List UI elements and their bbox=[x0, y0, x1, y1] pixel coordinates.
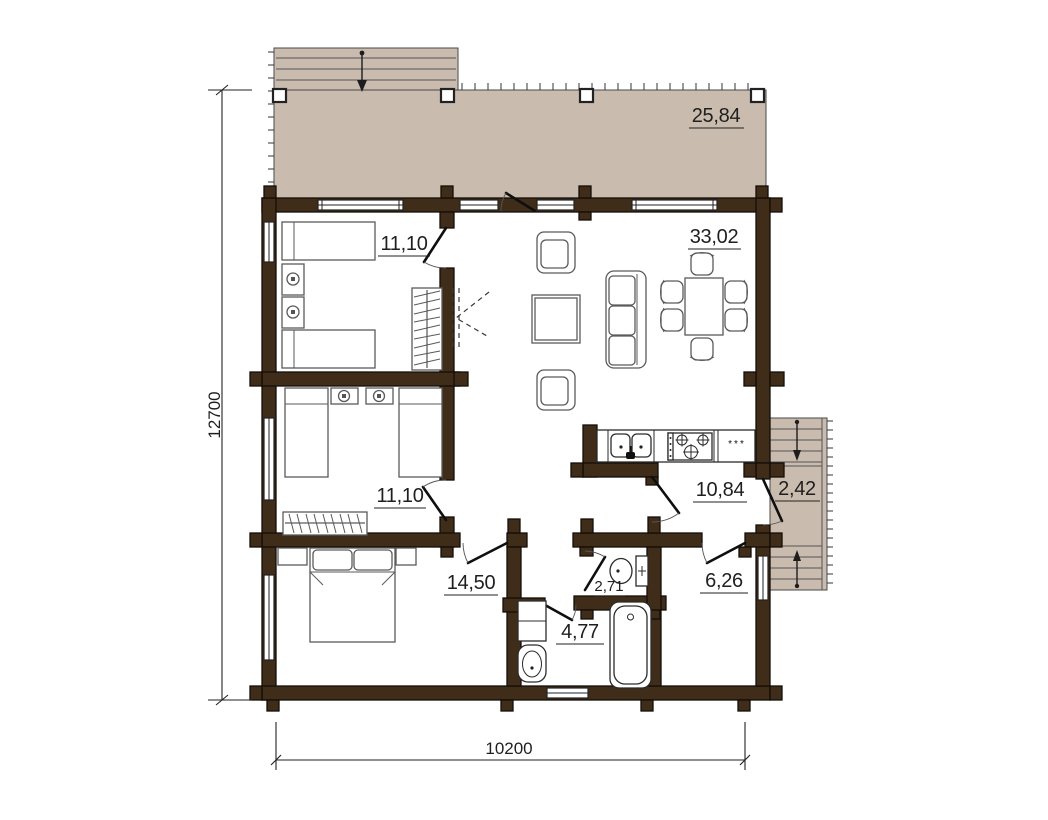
wall-bedrooms-divider bbox=[262, 372, 460, 386]
kitchen-door bbox=[652, 477, 679, 522]
window bbox=[547, 688, 588, 698]
porch bbox=[770, 418, 833, 590]
porch-floor bbox=[770, 418, 827, 590]
room-area-label-hall: 6,26 bbox=[705, 570, 743, 592]
wardrobe bbox=[412, 288, 442, 370]
dimension-label-vertical: 12700 bbox=[205, 391, 224, 438]
window bbox=[460, 200, 498, 210]
chair bbox=[691, 253, 713, 275]
window bbox=[537, 200, 574, 210]
wall-right-mid bbox=[756, 463, 770, 479]
chair bbox=[725, 281, 747, 303]
room-area-label-bedroom-top: 11,10 bbox=[380, 233, 427, 255]
wall-kitchen bbox=[583, 463, 658, 477]
porch-railing-ticks bbox=[827, 421, 833, 583]
dining-table bbox=[685, 278, 723, 335]
bed bbox=[285, 388, 328, 477]
bedroom-mid-door bbox=[423, 480, 446, 520]
dimension-label-horizontal: 10200 bbox=[485, 739, 532, 758]
wall-right-upper bbox=[756, 198, 770, 463]
chair bbox=[725, 309, 747, 331]
sofa bbox=[606, 271, 646, 368]
stove bbox=[668, 433, 712, 460]
pillow bbox=[354, 550, 392, 570]
room-area-label-wc: 2,71 bbox=[594, 578, 623, 595]
bathroom-door bbox=[545, 605, 576, 620]
dashed-opening-symbol bbox=[453, 288, 489, 350]
chair bbox=[661, 309, 683, 331]
room-area-label-kitchen: 10,84 bbox=[696, 479, 745, 501]
room-area-label-bath: 4,77 bbox=[561, 621, 599, 643]
doors bbox=[423, 193, 782, 620]
window bbox=[758, 556, 768, 600]
window bbox=[632, 200, 717, 210]
bedside-table bbox=[396, 548, 416, 565]
room-area-label-bedroom-mid: 11,10 bbox=[376, 485, 423, 507]
bedroom-bottom-furniture bbox=[278, 548, 416, 642]
living-furniture bbox=[532, 232, 748, 410]
pillow bbox=[313, 550, 352, 570]
washbasin bbox=[518, 645, 546, 682]
wall-right-lower bbox=[756, 525, 770, 686]
counter-mark: *** bbox=[728, 439, 746, 450]
bedroom-bottom-door bbox=[463, 543, 507, 563]
window bbox=[264, 222, 274, 262]
bed bbox=[282, 330, 375, 368]
faucet bbox=[626, 452, 635, 459]
room-area-label-living: 33,02 bbox=[690, 226, 739, 248]
wall-bottom bbox=[262, 686, 770, 700]
chair bbox=[661, 281, 683, 303]
terrace-railing-ticks bbox=[462, 83, 748, 90]
wardrobe bbox=[283, 512, 367, 535]
horizontal-dimension: 10200 bbox=[271, 722, 750, 770]
window bbox=[264, 575, 274, 660]
window bbox=[318, 200, 403, 210]
kitchen-counter: *** bbox=[597, 430, 755, 462]
room-area-label-bedroom-bottom: 14,50 bbox=[447, 572, 496, 594]
vertical-dimension: 12700 bbox=[205, 85, 252, 705]
floor-plan-page: *** 2 bbox=[0, 0, 1048, 820]
bed bbox=[282, 222, 375, 260]
bedside-table bbox=[278, 548, 307, 565]
floor-plan-drawing: *** 2 bbox=[0, 0, 1048, 820]
bathtub bbox=[610, 602, 651, 688]
bed bbox=[399, 388, 442, 477]
dining-set bbox=[661, 253, 748, 361]
room-area-label-porch: 2,42 bbox=[778, 478, 816, 500]
bedroom-mid-furniture bbox=[283, 388, 442, 535]
window bbox=[264, 418, 274, 500]
chair bbox=[691, 338, 713, 360]
room-area-label-terrace: 25,84 bbox=[692, 105, 741, 127]
